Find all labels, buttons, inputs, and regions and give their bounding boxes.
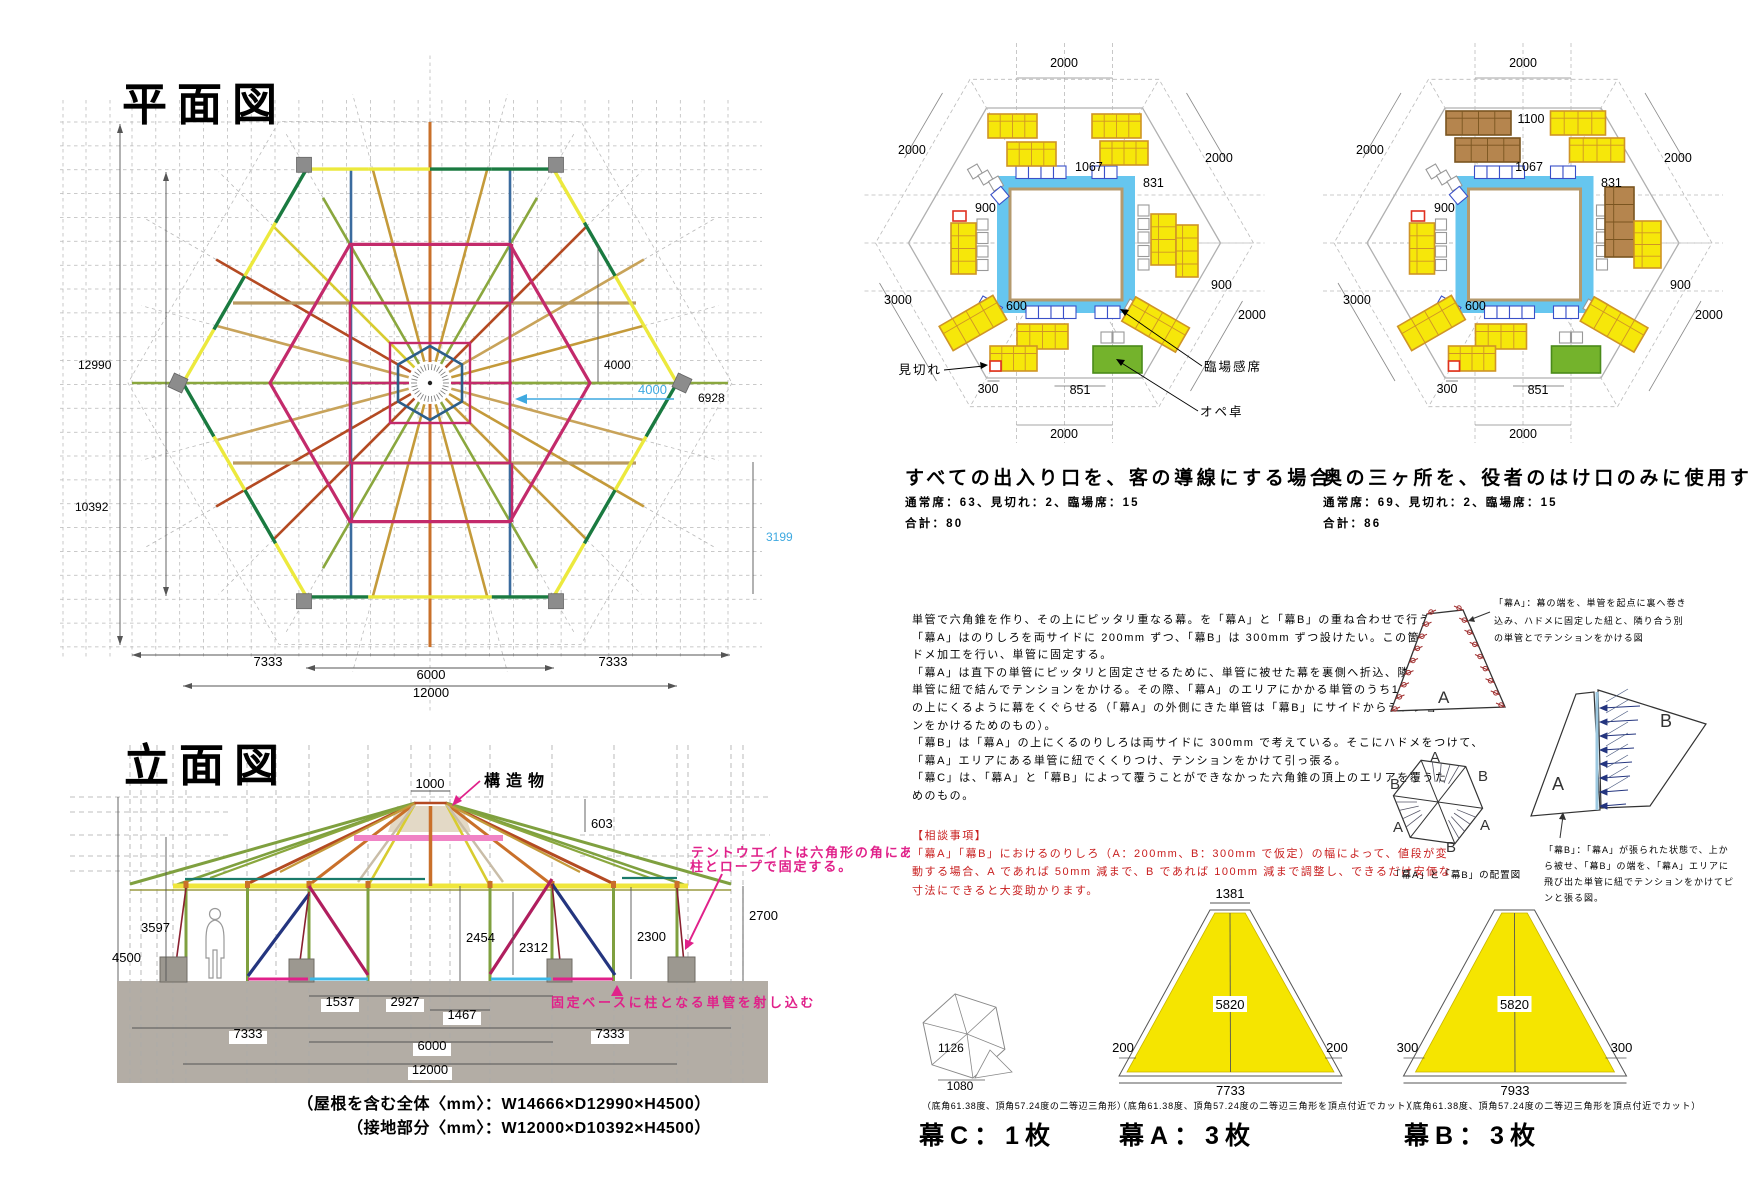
svg-text:（底角61.38度、頂角57.24度の二等辺三角形）: （底角61.38度、頂角57.24度の二等辺三角形） (922, 1100, 1127, 1111)
svg-text:4500: 4500 (112, 950, 141, 965)
svg-text:B: B (1478, 768, 1488, 785)
svg-text:1067: 1067 (1515, 160, 1543, 174)
svg-text:1080: 1080 (947, 1079, 974, 1093)
svg-text:「幕B」：「幕A」が張られた状態で、上か: 「幕B」：「幕A」が張られた状態で、上か (1544, 844, 1729, 855)
svg-text:テントウエイトは六角形の角にあた: テントウエイトは六角形の角にあた (691, 845, 910, 860)
svg-text:7333: 7333 (599, 654, 628, 669)
svg-text:1100: 1100 (1518, 112, 1545, 126)
svg-text:831: 831 (1601, 176, 1622, 190)
svg-text:ら被せ、「幕B」の端を、「幕A」エリアに: ら被せ、「幕B」の端を、「幕A」エリアに (1544, 860, 1729, 871)
svg-text:A: A (1438, 688, 1450, 707)
svg-text:2000: 2000 (1356, 143, 1384, 157)
svg-text:1000: 1000 (416, 776, 445, 791)
svg-text:幕B：3枚: 幕B：3枚 (1403, 1121, 1541, 1150)
svg-text:臨場感席: 臨場感席 (1204, 359, 1262, 374)
svg-text:6000: 6000 (418, 1038, 447, 1053)
svg-text:12000: 12000 (412, 1062, 448, 1077)
svg-text:2000: 2000 (1050, 56, 1078, 70)
svg-text:7333: 7333 (596, 1026, 625, 1041)
svg-text:（接地部分〈mm〉：W12000×D10392×H4500）: （接地部分〈mm〉：W12000×D10392×H4500） (347, 1118, 711, 1137)
svg-text:（底角61.38度、頂角57.24度の二等辺三角形を頂点付近: （底角61.38度、頂角57.24度の二等辺三角形を頂点付近でカット） (1403, 1100, 1701, 1111)
svg-text:A: A (1430, 749, 1440, 766)
svg-text:300: 300 (1437, 382, 1458, 396)
svg-text:「幕A」：幕の端を、単管を起点に裏へ巻き: 「幕A」：幕の端を、単管を起点に裏へ巻き (1494, 597, 1687, 608)
svg-text:幕A：3枚: 幕A：3枚 (1118, 1121, 1256, 1150)
svg-text:A: A (1393, 819, 1403, 836)
svg-text:2927: 2927 (391, 994, 420, 1009)
svg-text:2700: 2700 (749, 908, 778, 923)
svg-text:900: 900 (1211, 278, 1232, 292)
svg-text:600: 600 (1465, 299, 1486, 313)
svg-text:900: 900 (1434, 201, 1455, 215)
svg-text:2000: 2000 (1509, 56, 1537, 70)
svg-text:1126: 1126 (938, 1041, 964, 1055)
svg-text:1067: 1067 (1075, 160, 1103, 174)
svg-text:851: 851 (1070, 383, 1091, 397)
svg-text:（底角61.38度、頂角57.24度の二等辺三角形を頂点付近: （底角61.38度、頂角57.24度の二等辺三角形を頂点付近でカット） (1118, 1100, 1416, 1111)
svg-text:300: 300 (1611, 1040, 1633, 1055)
svg-text:込み、ハドメに固定した紐と、隣り合う別: 込み、ハドメに固定した紐と、隣り合う別 (1494, 615, 1684, 626)
svg-text:2000: 2000 (898, 143, 926, 157)
svg-text:2000: 2000 (1695, 308, 1723, 322)
svg-text:B: B (1390, 776, 1400, 793)
svg-text:2000: 2000 (1205, 151, 1233, 165)
svg-text:5820: 5820 (1216, 997, 1245, 1012)
svg-text:3000: 3000 (1343, 293, 1371, 307)
svg-text:B: B (1446, 839, 1456, 856)
svg-text:見切れ: 見切れ (898, 363, 942, 377)
svg-text:5820: 5820 (1500, 997, 1529, 1012)
svg-text:200: 200 (1112, 1040, 1134, 1055)
svg-text:固定ベースに柱となる単管を射し込む: 固定ベースに柱となる単管を射し込む (551, 995, 816, 1010)
svg-text:7333: 7333 (234, 1026, 263, 1041)
svg-text:1537: 1537 (326, 994, 355, 1009)
svg-text:A: A (1552, 774, 1564, 794)
svg-text:200: 200 (1326, 1040, 1348, 1055)
svg-text:300: 300 (978, 382, 999, 396)
svg-text:12000: 12000 (413, 685, 449, 700)
svg-text:7733: 7733 (1216, 1083, 1245, 1098)
svg-text:900: 900 (1670, 278, 1691, 292)
svg-text:構造物: 構造物 (484, 771, 550, 790)
svg-text:6000: 6000 (417, 667, 446, 682)
svg-text:2000: 2000 (1664, 151, 1692, 165)
svg-text:603: 603 (591, 816, 613, 831)
svg-text:300: 300 (1397, 1040, 1419, 1055)
svg-text:B: B (1660, 711, 1672, 731)
svg-text:7933: 7933 (1501, 1083, 1530, 1098)
svg-text:幕C：1枚: 幕C：1枚 (918, 1121, 1056, 1150)
svg-text:A: A (1480, 817, 1490, 834)
svg-text:2000: 2000 (1050, 427, 1078, 441)
svg-text:2000: 2000 (1509, 427, 1537, 441)
svg-text:立面図: 立面図 (124, 740, 289, 791)
svg-text:の単管とでテンションをかける図: の単管とでテンションをかける図 (1494, 632, 1644, 643)
svg-text:3597: 3597 (141, 920, 170, 935)
svg-text:900: 900 (975, 201, 996, 215)
svg-text:1381: 1381 (1216, 886, 1245, 901)
svg-text:831: 831 (1143, 176, 1164, 190)
svg-text:オペ卓: オペ卓 (1200, 405, 1244, 419)
svg-text:2454: 2454 (466, 930, 495, 945)
svg-text:851: 851 (1528, 383, 1549, 397)
svg-text:2312: 2312 (519, 940, 548, 955)
svg-text:3000: 3000 (884, 293, 912, 307)
svg-text:1467: 1467 (448, 1007, 477, 1022)
svg-text:（屋根を含む全体〈mm〉：W14666×D12990×H45: （屋根を含む全体〈mm〉：W14666×D12990×H4500） (297, 1094, 711, 1113)
svg-text:柱とロープで固定する。: 柱とロープで固定する。 (690, 859, 853, 874)
svg-text:600: 600 (1006, 299, 1027, 313)
svg-text:2300: 2300 (637, 929, 666, 944)
svg-text:7333: 7333 (254, 654, 283, 669)
svg-text:2000: 2000 (1238, 308, 1266, 322)
